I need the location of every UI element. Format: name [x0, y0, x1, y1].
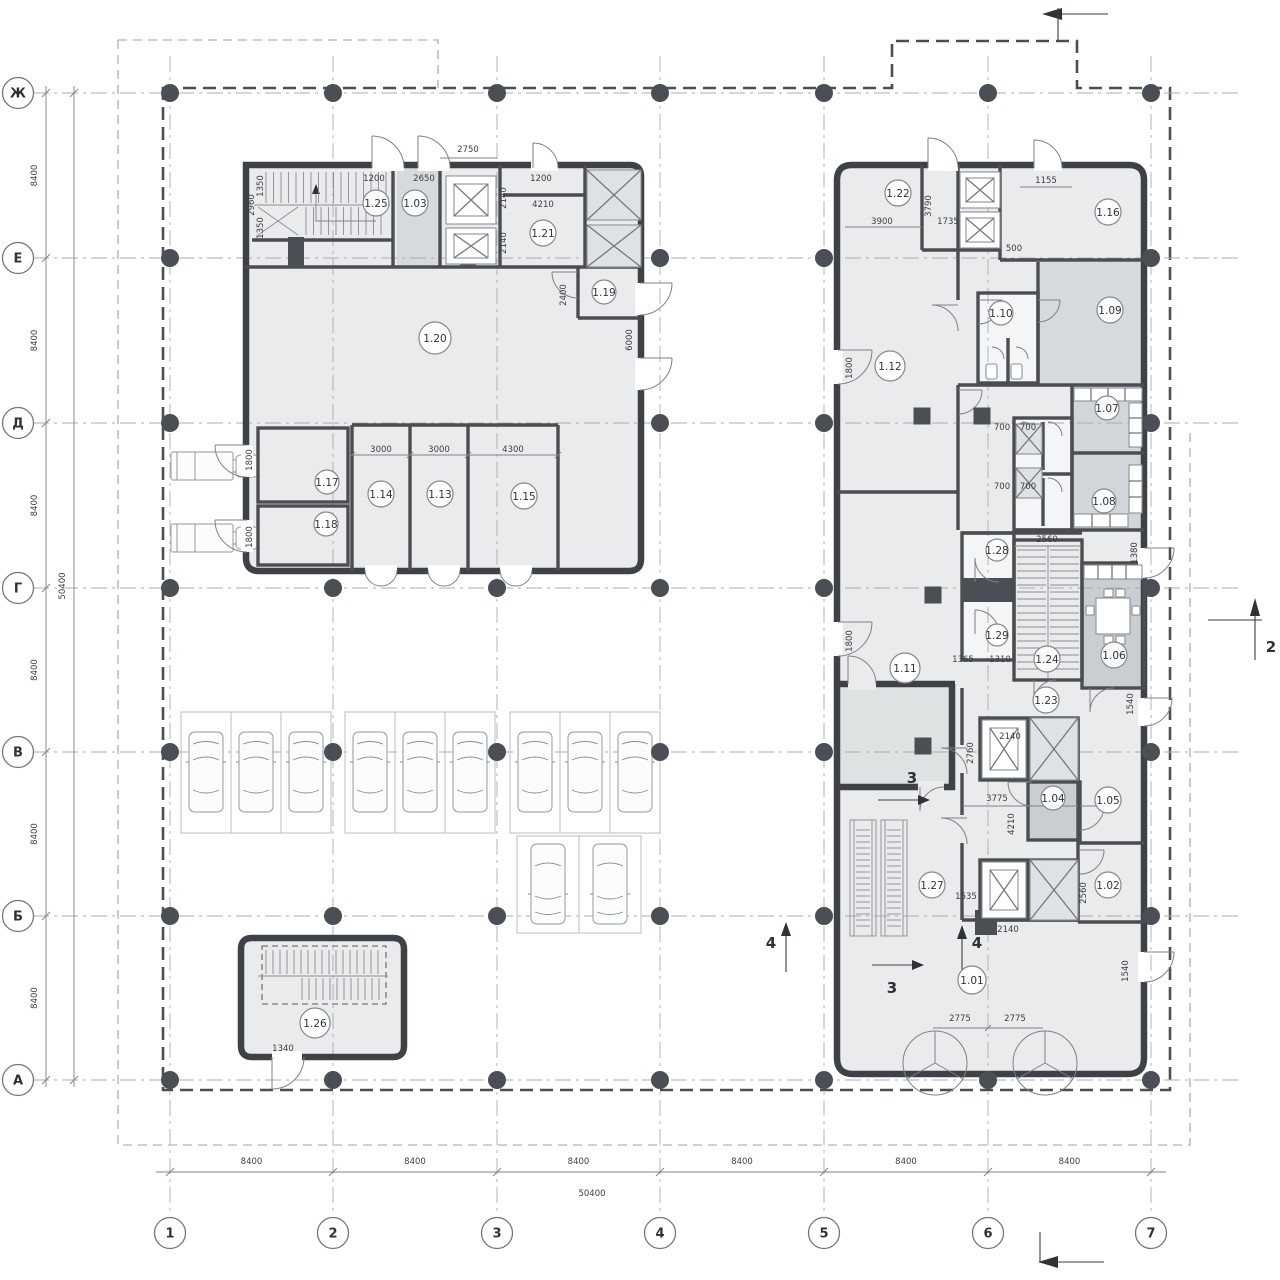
- annotation-dimension: 1340: [272, 1044, 294, 1054]
- axis-label-col: 2: [328, 1227, 337, 1242]
- dimension-label-bottom: 8400: [895, 1157, 917, 1167]
- column-mark: [815, 84, 833, 102]
- axis-label-col: 7: [1146, 1227, 1155, 1242]
- annotation-dimension: 2140: [499, 232, 509, 254]
- dimension-label-left: 8400: [30, 165, 40, 187]
- annotation-dimension: 1800: [245, 449, 255, 471]
- annotation-dimension: 500: [1006, 244, 1022, 254]
- annotation-dimension: 700: [994, 423, 1010, 433]
- room-label: 1.15: [512, 491, 535, 503]
- annotation-dimension: 1540: [1126, 693, 1136, 715]
- column-mark: [651, 84, 669, 102]
- column-mark: [815, 579, 833, 597]
- car-icon: [350, 732, 390, 812]
- annotation-dimension: 2560: [1036, 535, 1058, 545]
- annotation-dimension: 2140: [499, 187, 509, 209]
- annotation-dimension: 4300: [502, 445, 524, 455]
- annotation-dimension: 2750: [457, 145, 479, 155]
- annotation-dimension: 2650: [413, 174, 435, 184]
- annotation-dimension: 1735: [937, 217, 959, 227]
- axis-label-col: 5: [819, 1227, 828, 1242]
- column-mark: [815, 907, 833, 925]
- column-mark: [651, 249, 669, 267]
- column-mark: [161, 1071, 179, 1089]
- annotation-dimension: 2775: [949, 1014, 971, 1024]
- annotation-dimension: 2760: [966, 742, 976, 764]
- axis-label-row: В: [13, 746, 23, 761]
- room-label: 1.21: [531, 228, 554, 240]
- axis-label-col: 6: [983, 1227, 992, 1242]
- annotation-dimension: 4210: [1007, 813, 1017, 835]
- room-label: 1.27: [920, 880, 943, 892]
- annotation-dimension: 1800: [845, 357, 855, 379]
- left-building-fill: [246, 165, 641, 571]
- column-mark: [488, 907, 506, 925]
- room-label: 1.08: [1092, 496, 1115, 508]
- column-mark: [1142, 743, 1160, 761]
- car-icon: [565, 732, 605, 812]
- column-mark: [1142, 579, 1160, 597]
- axis-label-row: Е: [14, 252, 23, 267]
- annotation-dimension: 700: [1020, 423, 1036, 433]
- column-mark: [915, 738, 932, 755]
- annotation-dimension: 3000: [370, 445, 392, 455]
- column-mark: [324, 84, 342, 102]
- room-label: 1.17: [315, 477, 338, 489]
- dimension-label-left: 8400: [30, 823, 40, 845]
- dimension-label-left: 8400: [30, 659, 40, 681]
- room-label: 1.02: [1096, 880, 1119, 892]
- column-mark: [324, 1071, 342, 1089]
- room-label: 1.24: [1035, 654, 1059, 666]
- column-mark: [161, 907, 179, 925]
- annotation-dimension: 1800: [245, 526, 255, 548]
- room-label: 1.26: [303, 1018, 327, 1030]
- column-mark: [974, 408, 991, 425]
- column-mark: [815, 414, 833, 432]
- column-mark: [1142, 1071, 1160, 1089]
- column-mark: [161, 249, 179, 267]
- dimension-label-bottom: 8400: [1059, 1157, 1081, 1167]
- room-label: 1.11: [893, 663, 916, 675]
- section-label: 3: [907, 769, 917, 787]
- car-icon: [286, 732, 326, 812]
- column-mark: [324, 579, 342, 597]
- dimension-total-left: 50400: [58, 572, 68, 599]
- annotation-dimension: 2140: [997, 925, 1019, 935]
- room-label: 1.10: [989, 308, 1012, 320]
- axis-label-row: Б: [13, 910, 23, 925]
- annotation-dimension: 1800: [845, 630, 855, 652]
- axis-label-row: Г: [14, 582, 22, 597]
- annotation-dimension: 1535: [955, 892, 977, 902]
- room-label: 1.12: [878, 361, 901, 373]
- tech-room-fill: [838, 684, 954, 787]
- room-label: 1.01: [960, 975, 983, 987]
- annotation-dimension: 1155: [1035, 176, 1057, 186]
- axis-label-col: 1: [165, 1227, 174, 1242]
- annotation-dimension: 1540: [1121, 960, 1131, 982]
- section-label: 3: [887, 979, 897, 997]
- car-icon: [515, 732, 555, 812]
- room-label: 1.16: [1096, 207, 1120, 219]
- room-label: 1.19: [592, 287, 615, 299]
- section-label: 4: [766, 934, 776, 952]
- annotation-dimension: 3900: [871, 217, 893, 227]
- column-mark: [651, 1071, 669, 1089]
- annotation-dimension: 1380: [1130, 542, 1140, 564]
- section-label: 2: [1266, 638, 1276, 656]
- column-mark: [815, 743, 833, 761]
- annotation-dimension: 1350: [256, 217, 266, 239]
- column-mark: [979, 84, 997, 102]
- room-label: 1.23: [1034, 695, 1057, 707]
- column-mark: [979, 1071, 997, 1089]
- annotation-dimension: 1200: [530, 174, 552, 184]
- room-label: 1.28: [985, 545, 1008, 557]
- column-mark: [488, 743, 506, 761]
- annotation-dimension: 3790: [924, 195, 934, 217]
- dimension-label-left: 8400: [30, 330, 40, 352]
- axis-label-col: 3: [492, 1227, 501, 1242]
- annotation-dimension: 4210: [532, 200, 554, 210]
- car-icon: [615, 732, 655, 812]
- annotation-dimension: 1200: [363, 174, 385, 184]
- dimension-label-bottom: 8400: [568, 1157, 590, 1167]
- car-icon: [590, 844, 630, 924]
- room-label: 1.13: [428, 489, 451, 501]
- dimension-label-left: 8400: [30, 495, 40, 517]
- dimension-label-left: 8400: [30, 987, 40, 1009]
- column-mark: [161, 579, 179, 597]
- column-mark: [324, 907, 342, 925]
- dimension-total-bottom: 50400: [578, 1189, 605, 1199]
- room-label: 1.03: [403, 198, 426, 210]
- room-label: 1.22: [886, 188, 909, 200]
- annotation-dimension: 1310: [989, 655, 1011, 665]
- column-mark: [914, 408, 931, 425]
- column-mark: [651, 907, 669, 925]
- column-mark: [651, 743, 669, 761]
- car-icon: [450, 732, 490, 812]
- axis-label-row: А: [13, 1074, 23, 1089]
- room-label: 1.05: [1096, 795, 1119, 807]
- room-label: 1.04: [1041, 793, 1065, 805]
- column-mark: [488, 84, 506, 102]
- annotation-dimension: 2140: [999, 732, 1021, 742]
- axis-label-row: Д: [12, 417, 24, 432]
- room-label: 1.20: [423, 333, 446, 345]
- axis-label-row: Ж: [10, 87, 26, 102]
- annotation-dimension: 1365: [952, 655, 974, 665]
- room-label: 1.14: [369, 489, 393, 501]
- stair-pavilion-fill: [241, 938, 404, 1057]
- annotation-dimension: 2560: [1079, 882, 1089, 904]
- section-label: 4: [972, 934, 982, 952]
- dimension-label-bottom: 8400: [404, 1157, 426, 1167]
- room-label: 1.25: [364, 198, 387, 210]
- dimension-label-bottom: 8400: [731, 1157, 753, 1167]
- column-mark: [1142, 84, 1160, 102]
- column-mark: [651, 414, 669, 432]
- annotation-dimension: 1350: [256, 175, 266, 197]
- room-label: 1.06: [1102, 650, 1126, 662]
- dimension-label-bottom: 8400: [241, 1157, 263, 1167]
- column-mark: [324, 743, 342, 761]
- car-icon: [400, 732, 440, 812]
- column-mark: [1142, 249, 1160, 267]
- annotation-dimension: 700: [1020, 482, 1036, 492]
- car-icon: [186, 732, 226, 812]
- car-icon: [528, 844, 568, 924]
- column-mark: [815, 1071, 833, 1089]
- annotation-dimension: 2775: [1004, 1014, 1026, 1024]
- room-label: 1.07: [1095, 403, 1118, 415]
- annotation-dimension: 6000: [625, 329, 635, 351]
- column-mark: [161, 414, 179, 432]
- annotation-dimension: 2400: [559, 284, 569, 306]
- floor-plan-sheet: ЖЕДГВБА123456784008400840084008400840050…: [0, 0, 1280, 1280]
- parked-cars: [186, 732, 655, 924]
- column-mark: [1142, 907, 1160, 925]
- floor-plan-canvas: ЖЕДГВБА123456784008400840084008400840050…: [0, 0, 1280, 1280]
- room-109-fill: [1038, 262, 1144, 383]
- annotation-dimension: 3775: [986, 794, 1008, 804]
- annotation-dimension: 3000: [428, 445, 450, 455]
- column-mark: [488, 579, 506, 597]
- annotation-dimension: 700: [994, 482, 1010, 492]
- column-mark: [1142, 414, 1160, 432]
- column-mark: [815, 249, 833, 267]
- room-label: 1.29: [985, 630, 1008, 642]
- car-icon: [236, 732, 276, 812]
- column-mark: [925, 587, 942, 604]
- column-mark: [161, 84, 179, 102]
- axis-label-col: 4: [655, 1227, 664, 1242]
- room-label: 1.09: [1098, 305, 1121, 317]
- column-mark: [161, 743, 179, 761]
- room-label: 1.18: [314, 519, 337, 531]
- column-mark: [651, 579, 669, 597]
- column-mark: [488, 1071, 506, 1089]
